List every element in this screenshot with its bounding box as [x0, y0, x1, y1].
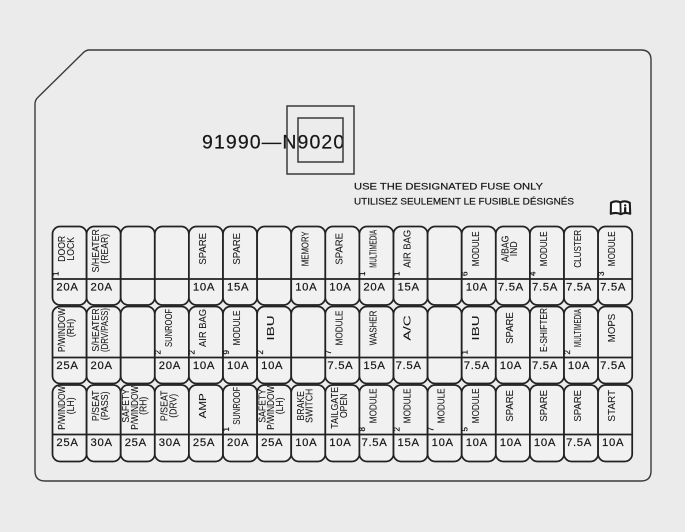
svg-text:20A: 20A [56, 281, 78, 293]
svg-text:MODULE: MODULE [607, 231, 618, 266]
svg-text:7.5A: 7.5A [327, 360, 353, 372]
svg-text:SUNROOF: SUNROOF [164, 309, 175, 347]
svg-text:9: 9 [222, 350, 231, 355]
svg-text:CLUSTER: CLUSTER [573, 230, 584, 268]
svg-text:MODULE: MODULE [437, 388, 448, 423]
svg-text:7.5A: 7.5A [600, 360, 626, 372]
svg-text:(RH): (RH) [66, 319, 77, 337]
svg-text:10A: 10A [193, 360, 215, 372]
svg-text:MODULE: MODULE [334, 310, 345, 345]
svg-text:SUNROOF: SUNROOF [232, 387, 243, 425]
svg-text:25A: 25A [193, 437, 215, 449]
svg-text:OPEN: OPEN [339, 394, 350, 419]
svg-text:15A: 15A [363, 360, 385, 372]
svg-text:30A: 30A [159, 437, 181, 449]
svg-text:25A: 25A [56, 437, 78, 449]
svg-text:MODULE: MODULE [369, 388, 380, 423]
svg-text:7.5A: 7.5A [532, 281, 558, 293]
svg-text:91990—N9020: 91990—N9020 [202, 132, 345, 154]
svg-text:7.5A: 7.5A [566, 437, 592, 449]
svg-text:20A: 20A [90, 360, 112, 372]
svg-text:1: 1 [392, 271, 401, 276]
svg-text:10A: 10A [500, 360, 522, 372]
svg-text:2: 2 [392, 427, 401, 432]
svg-text:2: 2 [256, 350, 265, 355]
svg-text:MODULE: MODULE [471, 388, 482, 423]
svg-text:(RH): (RH) [139, 397, 150, 415]
svg-text:10A: 10A [466, 281, 488, 293]
svg-text:SPARE: SPARE [232, 233, 243, 265]
svg-text:7.5A: 7.5A [498, 281, 524, 293]
svg-text:10A: 10A [193, 281, 215, 293]
svg-text:3: 3 [597, 271, 606, 276]
svg-text:4: 4 [529, 271, 538, 276]
svg-text:USE THE DESIGNATED FUSE ONLY: USE THE DESIGNATED FUSE ONLY [354, 182, 544, 193]
svg-text:7.5A: 7.5A [566, 281, 592, 293]
svg-text:(DRV/PASS): (DRV/PASS) [100, 308, 111, 352]
svg-text:7.5A: 7.5A [600, 281, 626, 293]
svg-text:MULTIMEDIA: MULTIMEDIA [573, 309, 584, 347]
svg-text:START: START [607, 390, 618, 422]
svg-text:30A: 30A [90, 437, 112, 449]
svg-text:SWITCH: SWITCH [305, 389, 316, 423]
svg-text:1: 1 [51, 271, 60, 276]
svg-text:SPARE: SPARE [505, 312, 516, 344]
svg-text:1: 1 [461, 350, 470, 355]
svg-text:25A: 25A [56, 360, 78, 372]
svg-text:10A: 10A [568, 360, 590, 372]
svg-text:10A: 10A [329, 281, 351, 293]
svg-text:(LH): (LH) [275, 397, 286, 414]
svg-text:10A: 10A [534, 437, 556, 449]
svg-text:MULTIMEDIA: MULTIMEDIA [369, 230, 380, 268]
svg-text:7.5A: 7.5A [396, 360, 422, 372]
svg-text:20A: 20A [159, 360, 181, 372]
svg-text:10A: 10A [261, 360, 283, 372]
svg-text:7.5A: 7.5A [464, 360, 490, 372]
svg-text:1: 1 [222, 427, 231, 432]
svg-text:7.5A: 7.5A [532, 360, 558, 372]
svg-text:IND: IND [509, 241, 520, 256]
svg-text:MEMORY: MEMORY [300, 231, 311, 266]
svg-text:AIR BAG: AIR BAG [403, 230, 414, 268]
svg-text:SPARE: SPARE [539, 390, 550, 422]
svg-text:10A: 10A [295, 281, 317, 293]
svg-text:LOCK: LOCK [66, 237, 77, 261]
svg-text:10A: 10A [329, 437, 351, 449]
svg-text:5: 5 [461, 427, 470, 432]
svg-text:7: 7 [324, 350, 333, 355]
svg-text:(LH): (LH) [66, 397, 77, 414]
svg-text:10A: 10A [295, 437, 317, 449]
svg-text:UTILISEZ SEULEMENT LE FUSIBLE: UTILISEZ SEULEMENT LE FUSIBLE DÉSIGNÉS [354, 197, 574, 208]
svg-text:MOPS: MOPS [607, 313, 618, 342]
svg-text:SPARE: SPARE [573, 390, 584, 422]
svg-text:20A: 20A [90, 281, 112, 293]
svg-text:MODULE: MODULE [471, 231, 482, 266]
svg-text:MODULE: MODULE [232, 310, 243, 345]
svg-text:SPARE: SPARE [198, 233, 209, 265]
svg-text:E-SHIFTER: E-SHIFTER [539, 308, 550, 352]
svg-text:7: 7 [426, 427, 435, 432]
svg-text:10A: 10A [602, 437, 624, 449]
svg-text:MODULE: MODULE [403, 388, 414, 423]
svg-text:15A: 15A [397, 281, 419, 293]
svg-text:(DRV): (DRV) [168, 394, 179, 418]
svg-text:8: 8 [358, 427, 367, 432]
svg-text:MODULE: MODULE [539, 231, 550, 266]
svg-text:15A: 15A [227, 281, 249, 293]
svg-text:2: 2 [188, 350, 197, 355]
svg-text:25A: 25A [261, 437, 283, 449]
svg-text:2: 2 [154, 350, 163, 355]
svg-text:20A: 20A [227, 437, 249, 449]
svg-text:IBU: IBU [266, 315, 277, 340]
svg-text:(PASS): (PASS) [100, 391, 111, 420]
svg-text:SPARE: SPARE [334, 233, 345, 265]
svg-text:6: 6 [461, 271, 470, 276]
svg-text:A/C: A/C [403, 315, 414, 340]
svg-text:WASHER: WASHER [369, 311, 380, 346]
svg-text:SPARE: SPARE [505, 390, 516, 422]
svg-text:7.5A: 7.5A [361, 437, 387, 449]
svg-text:AIR BAG: AIR BAG [198, 309, 209, 347]
svg-text:10A: 10A [227, 360, 249, 372]
svg-text:IBU: IBU [471, 315, 482, 340]
svg-text:10A: 10A [500, 437, 522, 449]
svg-text:25A: 25A [125, 437, 147, 449]
svg-text:AMP: AMP [198, 393, 209, 419]
svg-text:10A: 10A [432, 437, 454, 449]
svg-text:(REAR): (REAR) [100, 234, 111, 264]
svg-text:20A: 20A [363, 281, 385, 293]
svg-text:2: 2 [563, 350, 572, 355]
svg-text:10A: 10A [466, 437, 488, 449]
svg-text:1: 1 [358, 271, 367, 276]
svg-text:15A: 15A [397, 437, 419, 449]
